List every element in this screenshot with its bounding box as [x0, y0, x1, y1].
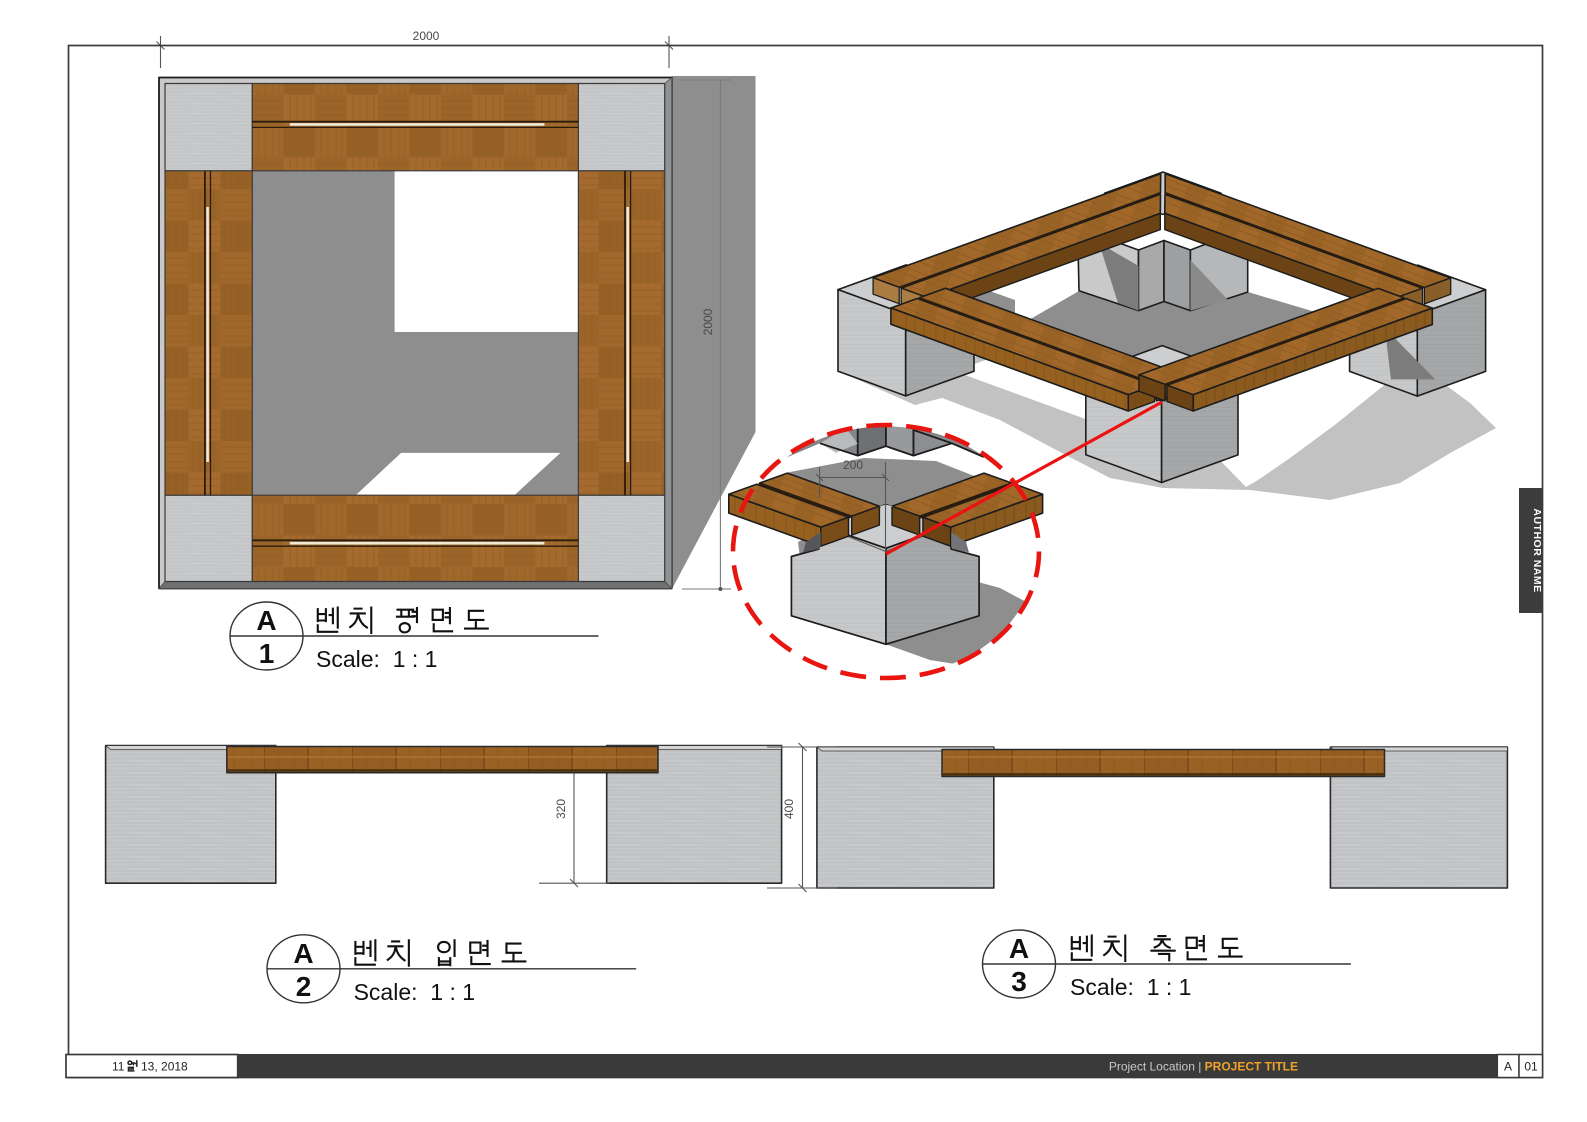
svg-text:400: 400 — [782, 799, 796, 819]
svg-text:Scale: 1 : 1: Scale: 1 : 1 — [354, 979, 475, 1005]
svg-text:2000: 2000 — [701, 308, 715, 335]
svg-text:A: A — [1504, 1060, 1512, 1074]
svg-text:320: 320 — [554, 799, 568, 819]
svg-text:AUTHOR NAME: AUTHOR NAME — [1531, 508, 1543, 592]
svg-text:200: 200 — [843, 458, 863, 472]
svg-text:01: 01 — [1524, 1060, 1538, 1074]
svg-text:1: 1 — [259, 638, 275, 669]
svg-text:A: A — [1009, 933, 1029, 964]
svg-text:11: 11 — [112, 1060, 125, 1074]
svg-text:Scale: 1 : 1: Scale: 1 : 1 — [316, 646, 437, 672]
svg-text:13, 2018: 13, 2018 — [141, 1060, 188, 1074]
svg-text:A: A — [256, 605, 276, 636]
svg-text:3: 3 — [1011, 966, 1027, 997]
svg-text:Project Location | PROJECT TIT: Project Location | PROJECT TITLE — [1109, 1060, 1298, 1074]
svg-text:2000: 2000 — [413, 29, 440, 43]
svg-text:2: 2 — [296, 971, 312, 1002]
svg-text:A: A — [293, 938, 313, 969]
svg-text:Scale: 1 : 1: Scale: 1 : 1 — [1070, 974, 1191, 1000]
